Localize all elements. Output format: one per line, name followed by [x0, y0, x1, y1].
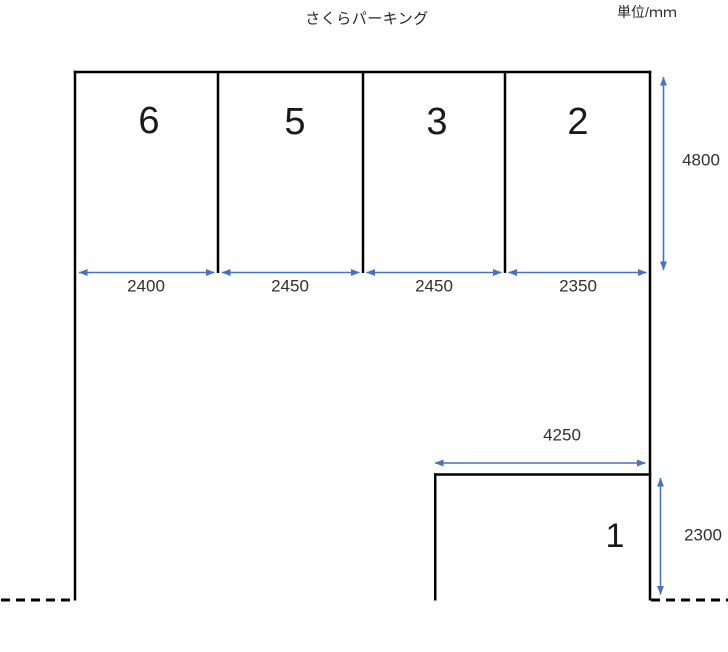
dimension-label-stall1-depth: 2300 [684, 527, 722, 544]
stall-1-number: 1 [606, 519, 625, 553]
parking-diagram: さくらパーキング 単位/ｍｍ 6 5 3 2 1 2400 [0, 0, 728, 652]
stall-6-number: 6 [138, 102, 159, 140]
stall-3-number: 3 [426, 103, 447, 141]
dimension-label-stall2-width: 2350 [559, 278, 597, 295]
dimension-label-stall5-width: 2450 [271, 278, 309, 295]
dimension-label-stall3-width: 2450 [415, 278, 453, 295]
dimension-label-row-depth: 4800 [682, 152, 720, 169]
stall-5-number: 5 [284, 103, 305, 141]
dimension-label-stall6-width: 2400 [127, 278, 165, 295]
dimension-label-stall1-width: 4250 [543, 427, 581, 444]
stall-2-number: 2 [567, 103, 588, 141]
